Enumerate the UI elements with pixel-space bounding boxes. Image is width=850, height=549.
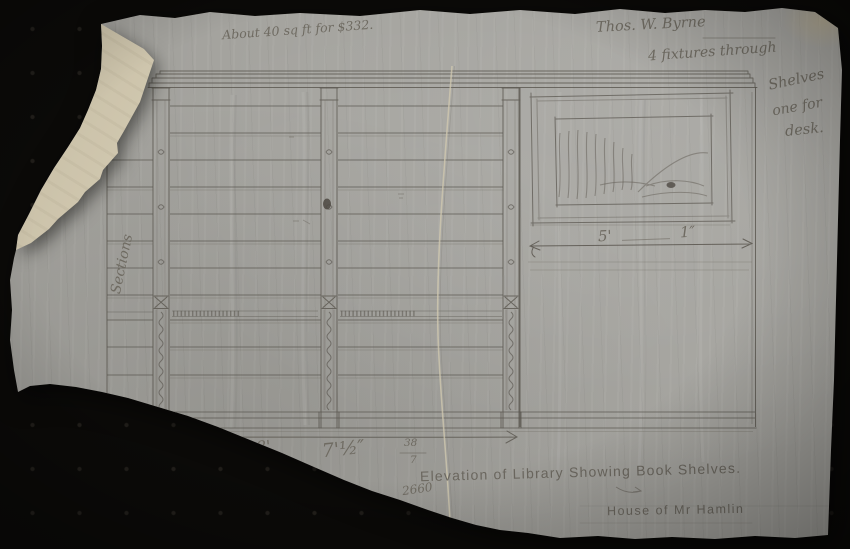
graphite-smudge	[323, 199, 331, 210]
fixtures-note-line2: Shelves	[767, 66, 826, 93]
pilasters	[151, 88, 521, 428]
bottom-dimension-line	[106, 431, 517, 443]
fixtures-note-line3: one for	[771, 95, 823, 120]
shelf-lines-faint	[107, 136, 753, 432]
shelf-lines	[105, 106, 757, 428]
picture-frame-sketch	[530, 90, 735, 226]
fixtures-note-line4: desk.	[784, 120, 824, 140]
picture-dimension-line	[530, 239, 752, 257]
paper-wrinkles-dark	[235, 92, 645, 468]
bottom-dimension-8ft: 8'	[255, 436, 271, 456]
pilaster-carving	[158, 150, 514, 410]
drawing-title: Elevation of Library Showing Book Shelve…	[420, 460, 742, 484]
tracing-paper-wrap: About 40 sq ft for $332. Thos. W. Byrne …	[0, 0, 850, 549]
picture-scene-scribble	[559, 130, 708, 199]
sections-side-label: Sections	[108, 233, 136, 295]
dimension-dash	[622, 238, 670, 241]
picture-dimension-inches: 1″	[680, 223, 696, 242]
client-name-note: Thos. W. Byrne	[596, 14, 706, 36]
ruled-guides	[400, 38, 836, 523]
scanned-drawing-on-black-board: About 40 sq ft for $332. Thos. W. Byrne …	[0, 0, 850, 549]
project-name: House of Mr Hamlin	[607, 502, 745, 518]
title-annotation-arrow	[616, 487, 641, 492]
sheet-fraction-numerator: 38	[404, 437, 417, 449]
pilaster-inner-lines	[156, 100, 516, 410]
area-cost-note: About 40 sq ft for $332.	[222, 17, 374, 43]
bottom-dimension-7half: 7'½″	[321, 436, 366, 462]
sheet-fraction-denominator: 7	[410, 454, 417, 466]
stray-pencil-marks	[288, 133, 404, 224]
case-verticals	[107, 87, 756, 427]
fixtures-note-line1: 4 fixtures through	[648, 40, 777, 65]
carved-band	[107, 311, 502, 317]
tracing-paper-sheet: About 40 sq ft for $332. Thos. W. Byrne …	[0, 0, 850, 549]
cornice	[148, 71, 757, 88]
paper-wrinkles	[231, 92, 703, 470]
picture-dimension-feet: 5'	[598, 227, 613, 246]
picture-dark-accent	[667, 182, 676, 188]
